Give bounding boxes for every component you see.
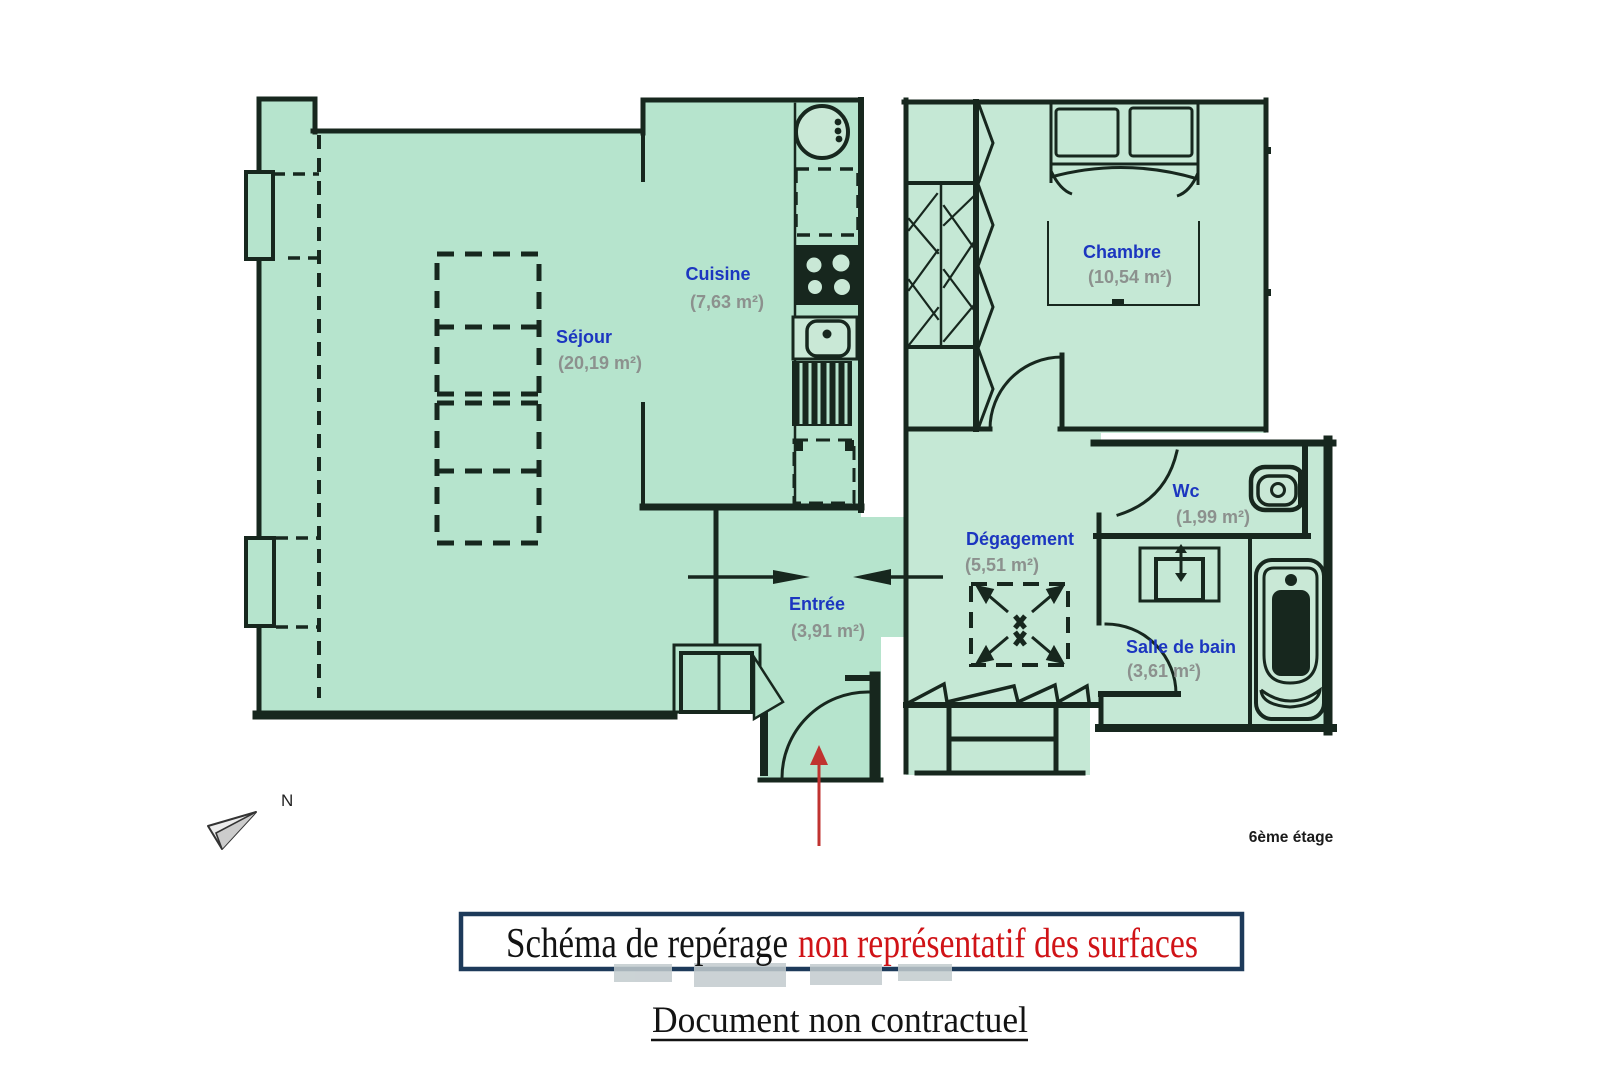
svg-text:non représentatif des surfaces: non représentatif des surfaces — [798, 921, 1198, 967]
svg-text:Dégagement: Dégagement — [966, 529, 1074, 549]
svg-text:(5,51 m²): (5,51 m²) — [965, 555, 1039, 575]
svg-text:(20,19 m²): (20,19 m²) — [558, 353, 642, 373]
svg-text:(7,63 m²): (7,63 m²) — [690, 292, 764, 312]
svg-text:Wc: Wc — [1173, 481, 1200, 501]
svg-text:Document non contractuel: Document non contractuel — [652, 1000, 1028, 1041]
svg-text:(1,99 m²): (1,99 m²) — [1176, 507, 1250, 527]
svg-text:6ème étage: 6ème étage — [1249, 829, 1334, 846]
svg-text:Entrée: Entrée — [789, 594, 845, 614]
svg-text:Salle de bain: Salle de bain — [1126, 637, 1236, 657]
svg-text:(10,54 m²): (10,54 m²) — [1088, 267, 1172, 287]
svg-text:Cuisine: Cuisine — [685, 264, 750, 284]
svg-text:Séjour: Séjour — [556, 327, 612, 347]
svg-text:Schéma de repérage: Schéma de repérage — [506, 921, 788, 967]
svg-text:(3,91 m²): (3,91 m²) — [791, 621, 865, 641]
svg-text:Chambre: Chambre — [1083, 242, 1161, 262]
svg-text:N: N — [281, 791, 293, 810]
svg-text:(3,61 m²): (3,61 m²) — [1127, 661, 1201, 681]
